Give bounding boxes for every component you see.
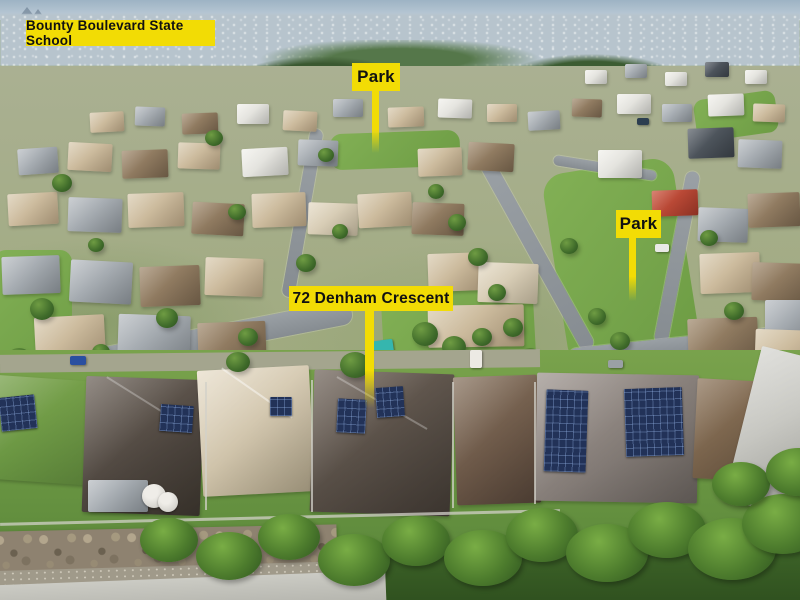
tree xyxy=(588,308,606,325)
tree xyxy=(296,254,316,272)
fence xyxy=(534,382,536,504)
house xyxy=(708,93,745,116)
house xyxy=(687,127,734,159)
house xyxy=(572,98,603,117)
tree xyxy=(228,204,246,220)
house xyxy=(751,262,800,302)
tree xyxy=(226,352,250,372)
fence xyxy=(311,380,313,512)
water-tank xyxy=(158,492,178,512)
tree xyxy=(52,174,72,192)
label-school: Bounty Boulevard State School xyxy=(26,20,215,46)
house xyxy=(438,98,473,118)
tree xyxy=(724,302,744,320)
house xyxy=(467,142,514,172)
house xyxy=(357,192,413,229)
house xyxy=(665,72,687,86)
solar-panel-array xyxy=(270,397,292,416)
tree xyxy=(472,328,492,346)
tree xyxy=(205,130,223,146)
house xyxy=(127,192,184,228)
tree xyxy=(700,230,718,246)
blue-car xyxy=(70,356,86,365)
suburb-midground xyxy=(0,66,800,386)
label-property-address: 72 Denham Crescent xyxy=(289,286,453,311)
tree xyxy=(238,328,258,346)
bush xyxy=(258,514,320,560)
solar-panel-array xyxy=(159,404,194,433)
house xyxy=(477,262,538,304)
house xyxy=(388,106,425,127)
house xyxy=(282,110,317,132)
tree xyxy=(468,248,488,266)
bush xyxy=(712,462,770,506)
house xyxy=(747,192,800,228)
bush xyxy=(382,516,450,566)
tree xyxy=(88,238,104,252)
solar-panel-array xyxy=(336,398,367,433)
house xyxy=(251,192,306,228)
tree xyxy=(560,238,578,254)
house xyxy=(745,70,767,84)
bush xyxy=(196,532,262,580)
solar-panel-array xyxy=(0,394,38,432)
house xyxy=(705,62,729,77)
house xyxy=(241,147,288,177)
house xyxy=(237,104,269,124)
fence xyxy=(452,382,454,508)
house xyxy=(135,106,166,126)
house xyxy=(204,257,263,297)
house xyxy=(528,110,561,131)
house xyxy=(585,70,607,84)
house-foreground xyxy=(197,365,315,497)
white-car xyxy=(655,244,669,252)
house xyxy=(662,104,692,122)
house xyxy=(617,94,651,114)
solar-panel-array xyxy=(624,387,684,457)
aerial-photo: Bounty Boulevard State School Park Park … xyxy=(0,0,800,600)
dark-car xyxy=(637,118,649,125)
house xyxy=(418,147,463,177)
tree xyxy=(332,224,348,239)
white-caravan xyxy=(470,350,482,368)
house xyxy=(1,255,60,295)
house-foreground xyxy=(453,375,541,506)
tree xyxy=(30,298,54,320)
tree xyxy=(412,322,438,346)
house xyxy=(17,147,59,176)
house xyxy=(67,197,122,233)
label-park-right: Park xyxy=(616,210,661,238)
house xyxy=(178,142,221,169)
house xyxy=(598,150,642,178)
bush xyxy=(140,518,198,562)
tree xyxy=(503,318,523,337)
house xyxy=(69,259,133,304)
house xyxy=(67,142,112,172)
fence xyxy=(205,382,207,510)
pergola xyxy=(88,480,148,512)
house xyxy=(753,103,786,122)
house xyxy=(333,99,363,117)
solar-panel-array xyxy=(544,389,589,472)
house xyxy=(89,111,124,133)
tree xyxy=(488,284,506,301)
tree xyxy=(428,184,444,199)
house xyxy=(738,139,783,169)
label-park-top: Park xyxy=(352,63,400,91)
house xyxy=(487,104,517,122)
tree xyxy=(318,148,334,162)
tree xyxy=(156,308,178,328)
house xyxy=(625,64,647,78)
pointer-stem-park-top xyxy=(372,90,379,153)
house xyxy=(7,192,59,227)
pointer-stem-property xyxy=(365,309,374,408)
tree xyxy=(610,332,630,350)
solar-panel-array xyxy=(375,386,405,418)
house xyxy=(139,265,200,307)
house xyxy=(122,149,169,179)
gray-car xyxy=(608,360,623,368)
pointer-stem-park-right xyxy=(629,236,636,301)
bush xyxy=(318,534,390,586)
tree xyxy=(448,214,466,231)
